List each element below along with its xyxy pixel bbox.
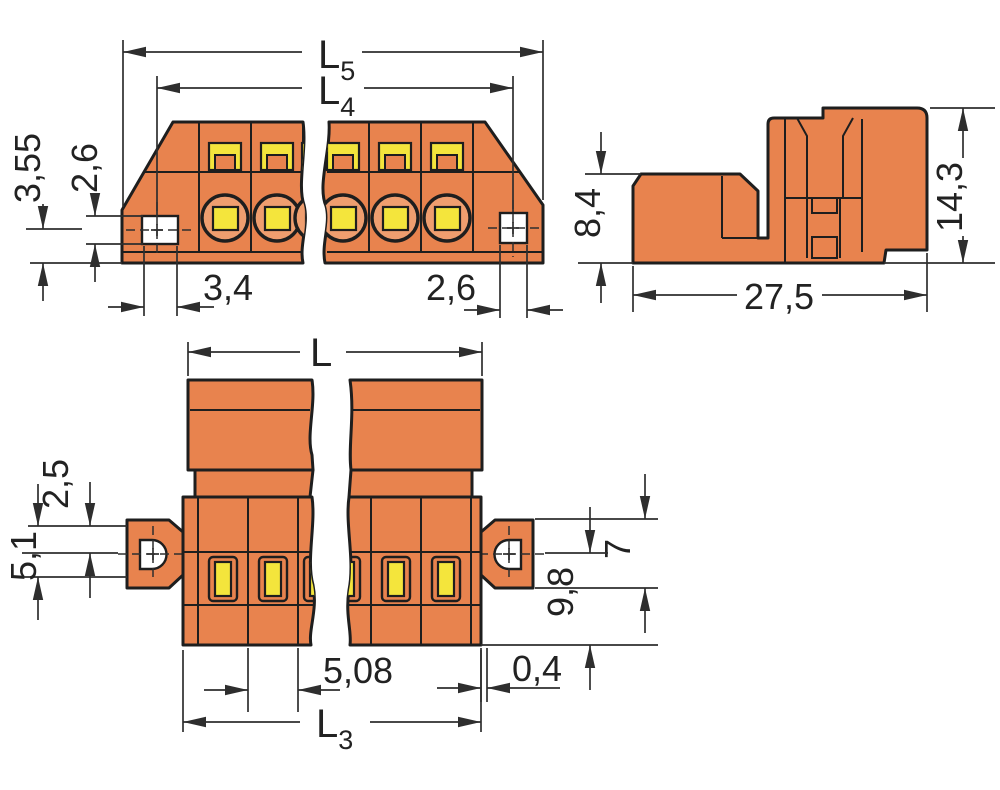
profile-body	[633, 108, 927, 263]
plan-shroud-right	[350, 380, 482, 470]
dim-label-0-4: 0,4	[512, 648, 562, 689]
dim-label-2-6-bottom: 2,6	[426, 267, 476, 308]
dim-label-l: L	[310, 331, 332, 375]
dim-label-5-1: 5,1	[3, 531, 44, 581]
dim-label-27-5: 27,5	[744, 276, 814, 317]
plan-view: L 2,5 5,1 7	[3, 331, 658, 755]
dim-label-14-3: 14,3	[929, 162, 970, 232]
dim-label-5-08: 5,08	[323, 650, 393, 691]
plan-shroud-left	[188, 380, 313, 470]
side-view: L5 L4 3,55 2,6	[7, 33, 563, 318]
dim-label-2-6-left: 2,6	[64, 143, 105, 193]
dim-l: L	[188, 331, 482, 376]
plan-neck-right	[349, 470, 472, 497]
dim-label-9-8: 9,8	[540, 567, 581, 617]
profile-view: 8,4 14,3 27,5	[567, 108, 995, 317]
technical-drawing-page: L5 L4 3,55 2,6	[0, 0, 1000, 790]
dim-0-4: 0,4	[437, 648, 562, 702]
dim-label-7: 7	[597, 539, 638, 559]
dim-label-l3: L3	[316, 702, 353, 755]
connector-drawing-canvas: L5 L4 3,55 2,6	[0, 0, 1000, 790]
dim-8-4: 8,4	[567, 132, 641, 303]
dim-label-8-4: 8,4	[567, 188, 608, 238]
dim-label-3-55: 3,55	[7, 133, 48, 203]
dim-5-08: 5,08	[204, 648, 393, 712]
plan-neck-left	[195, 470, 313, 497]
dim-label-2-5: 2,5	[35, 459, 76, 509]
dim-label-3-4: 3,4	[203, 267, 253, 308]
